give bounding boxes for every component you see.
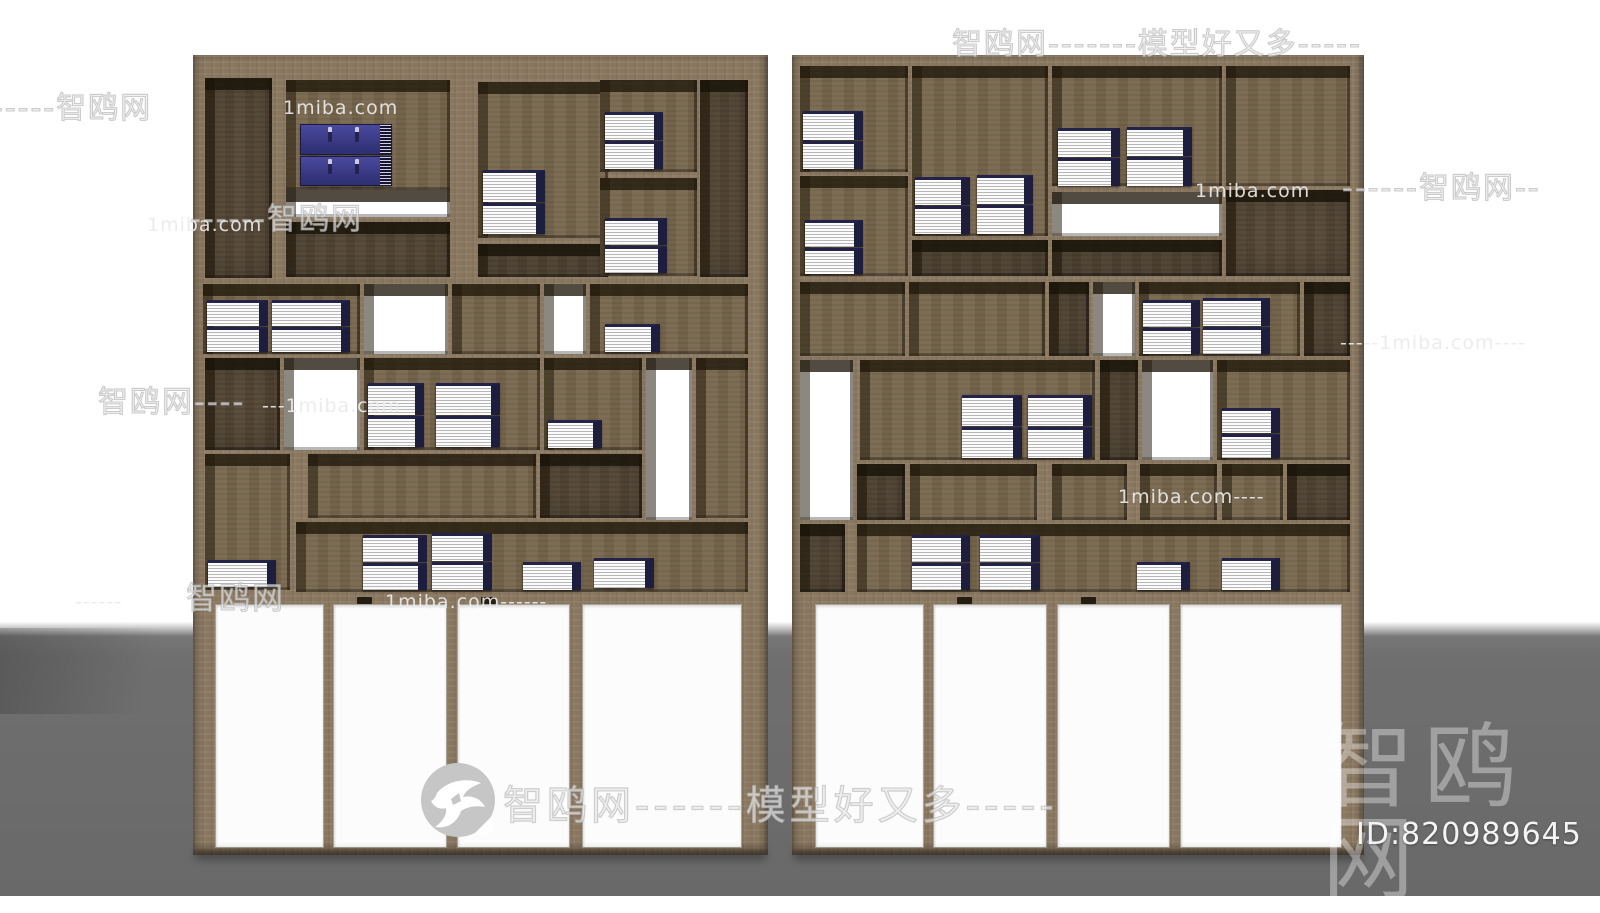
book [1127, 127, 1192, 156]
book [605, 218, 667, 245]
book-stack [980, 535, 1040, 590]
book-stack [1137, 562, 1190, 590]
book [915, 206, 970, 234]
door-panel [815, 604, 924, 848]
box-clasp [355, 159, 359, 174]
box-clasp [328, 159, 332, 174]
shelf-compartment [308, 454, 536, 518]
door-panel [215, 604, 324, 848]
book [1058, 158, 1120, 187]
storage-box [300, 124, 392, 155]
shelf-compartment [1100, 360, 1138, 460]
shelf-compartment [540, 454, 642, 518]
book-stack [432, 533, 492, 590]
door-panel [582, 604, 742, 848]
book-stack [272, 300, 350, 352]
shelf-compartment [286, 222, 450, 277]
book [1028, 427, 1092, 458]
book-stack [436, 383, 500, 447]
book [1222, 408, 1280, 433]
book [368, 383, 424, 415]
book [1222, 558, 1280, 590]
book-stack [368, 383, 424, 447]
shelf-compartment [696, 358, 748, 518]
shelf-compartment [1140, 464, 1217, 520]
book [1203, 298, 1270, 326]
shelf-compartment [860, 360, 1095, 460]
shelf-compartment [1142, 360, 1213, 460]
book-stack [605, 324, 660, 352]
book [605, 141, 663, 169]
door-panel [933, 604, 1047, 848]
book-stack [912, 535, 970, 590]
book [1058, 128, 1120, 157]
book-stack [962, 395, 1022, 458]
book [605, 112, 663, 140]
shelf-compartment [1226, 190, 1350, 276]
book-stack [977, 175, 1033, 234]
box-side [380, 157, 391, 186]
book [483, 170, 545, 202]
book-stack [207, 300, 268, 352]
book [805, 220, 863, 247]
shelf-compartment [857, 464, 905, 520]
shelf-compartment [600, 178, 697, 276]
shelf-compartment [205, 78, 272, 278]
shelf-compartment [205, 454, 290, 590]
book [1143, 328, 1200, 355]
book [432, 562, 492, 590]
book [912, 535, 970, 562]
book-stack [1028, 395, 1092, 458]
book [962, 427, 1022, 458]
shelf-compartment [544, 358, 642, 450]
shelf-compartment [800, 282, 905, 356]
book [980, 563, 1040, 590]
shelf-compartment [1139, 282, 1300, 356]
shelf-compartment [286, 80, 450, 190]
book [805, 248, 863, 275]
book [962, 395, 1022, 426]
shelf-compartment [284, 358, 360, 450]
book [432, 533, 492, 561]
book [363, 535, 427, 562]
box-clasp [355, 127, 359, 142]
book-stack [1127, 127, 1192, 186]
render-scene: 智鸥网------模型好又多----- 智鸥网 ID:820989645 智鸥网… [0, 0, 1600, 896]
book [207, 300, 268, 326]
storage-box [300, 156, 392, 187]
box-side [380, 125, 391, 154]
book-stack [523, 562, 581, 590]
book [1143, 300, 1200, 327]
door-pull-notch [357, 597, 372, 604]
box-clasp [328, 127, 332, 142]
book [605, 324, 660, 352]
book-stack [805, 220, 863, 274]
shelf-compartment [205, 358, 280, 450]
shelf-compartment [1217, 360, 1350, 460]
book [368, 416, 424, 448]
book [363, 563, 427, 590]
door-panel [333, 604, 447, 848]
shelf-compartment [1304, 282, 1350, 356]
book [207, 327, 268, 353]
book [436, 383, 500, 415]
shelf-compartment [800, 176, 908, 276]
book [483, 203, 545, 235]
left-shelf [193, 55, 768, 855]
door-pull-notch [481, 597, 496, 604]
shelf-compartment [910, 464, 1037, 520]
shelf-compartment [286, 190, 450, 217]
book [436, 416, 500, 448]
box-stack [300, 124, 392, 186]
shelf-compartment [544, 284, 586, 354]
shelf-compartment [857, 524, 1350, 592]
book [803, 141, 863, 170]
book-stack [548, 420, 602, 448]
book-stack [1222, 408, 1280, 458]
shelf-compartment [452, 284, 540, 354]
book [208, 560, 276, 587]
book [803, 111, 863, 140]
shelf-compartment [800, 66, 908, 172]
shelf-compartment [800, 524, 845, 592]
shelf-compartment [364, 358, 540, 450]
book [977, 205, 1033, 234]
book-stack [605, 112, 663, 169]
book [605, 246, 667, 273]
cast-shadow [0, 628, 210, 714]
book [980, 535, 1040, 562]
door-panel [457, 604, 570, 848]
shelf-compartment [1287, 464, 1350, 520]
book-stack [605, 218, 667, 273]
door-panel [1057, 604, 1170, 848]
book-stack [363, 535, 427, 590]
book [272, 300, 350, 326]
shelf-compartment [909, 282, 1045, 356]
shelf-compartment [1052, 464, 1127, 520]
door-panel [1180, 604, 1342, 848]
book-stack [803, 111, 863, 169]
shelf-compartment [1226, 66, 1350, 186]
book-stack [1222, 558, 1280, 590]
shelf-compartment [912, 240, 1048, 276]
shelf-compartment [700, 80, 748, 277]
book-stack [1203, 298, 1270, 354]
shelf-compartment [600, 80, 697, 172]
book [1028, 395, 1092, 426]
shelf-compartment [800, 360, 853, 520]
book [1203, 327, 1270, 355]
door-pull-notch [957, 597, 972, 604]
shelf-compartment [296, 522, 748, 592]
shelf-compartment [1052, 240, 1222, 276]
book-stack [208, 560, 276, 587]
book [272, 327, 350, 353]
door-pull-notch [1081, 597, 1096, 604]
book [1127, 157, 1192, 186]
book-stack [594, 558, 654, 588]
book-stack [1143, 300, 1200, 354]
book [912, 563, 970, 590]
right-shelf [792, 55, 1364, 855]
book [977, 175, 1033, 204]
shelf-compartment [1093, 282, 1135, 356]
book [1222, 434, 1280, 459]
book [594, 558, 654, 588]
shelf-compartment [1222, 464, 1283, 520]
shelf-compartment [912, 66, 1048, 236]
book-stack [1058, 128, 1120, 186]
shelf-compartment [1052, 66, 1222, 186]
shelf-compartment [203, 284, 360, 354]
book-stack [483, 170, 545, 234]
book-stack [915, 177, 970, 234]
book [915, 177, 970, 205]
book [548, 420, 602, 448]
shelf-compartment [1052, 192, 1222, 236]
shelf-compartment [1049, 282, 1089, 356]
shelf-compartment [478, 82, 608, 238]
book [1137, 562, 1190, 590]
shelf-compartment [590, 284, 748, 354]
book [523, 562, 581, 590]
shelf-compartment [364, 284, 448, 354]
shelf-compartment [478, 244, 608, 277]
shelf-compartment [646, 358, 692, 520]
